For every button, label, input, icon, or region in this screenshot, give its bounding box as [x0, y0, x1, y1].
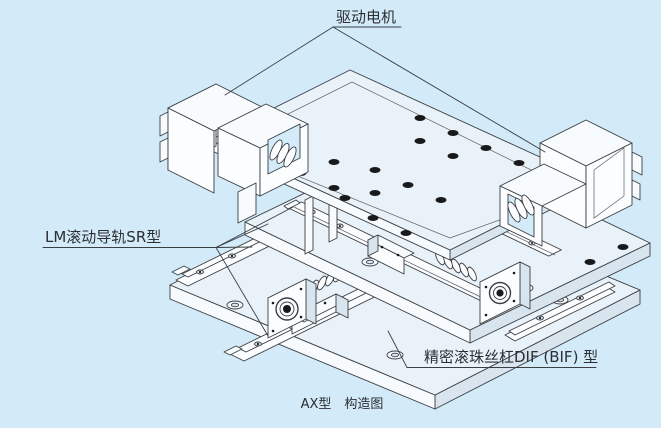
leader-line: [216, 247, 252, 248]
ax-stage-diagram: 驱动电机 LM滚动导轨SR型 精密滚珠丝杠DIF (BIF) 型 AX型 构造图: [0, 0, 661, 428]
motor-ear: [632, 180, 640, 200]
diagram-page: 驱动电机 LM滚动导轨SR型 精密滚珠丝杠DIF (BIF) 型 AX型 构造图: [0, 0, 661, 428]
label-lm-guide: LM滚动导轨SR型: [45, 228, 161, 246]
figure-caption: AX型 构造图: [301, 397, 384, 412]
label-ball-screw: 精密滚珠丝杠DIF (BIF) 型: [424, 348, 598, 366]
label-drive-motor: 驱动电机: [336, 8, 396, 26]
